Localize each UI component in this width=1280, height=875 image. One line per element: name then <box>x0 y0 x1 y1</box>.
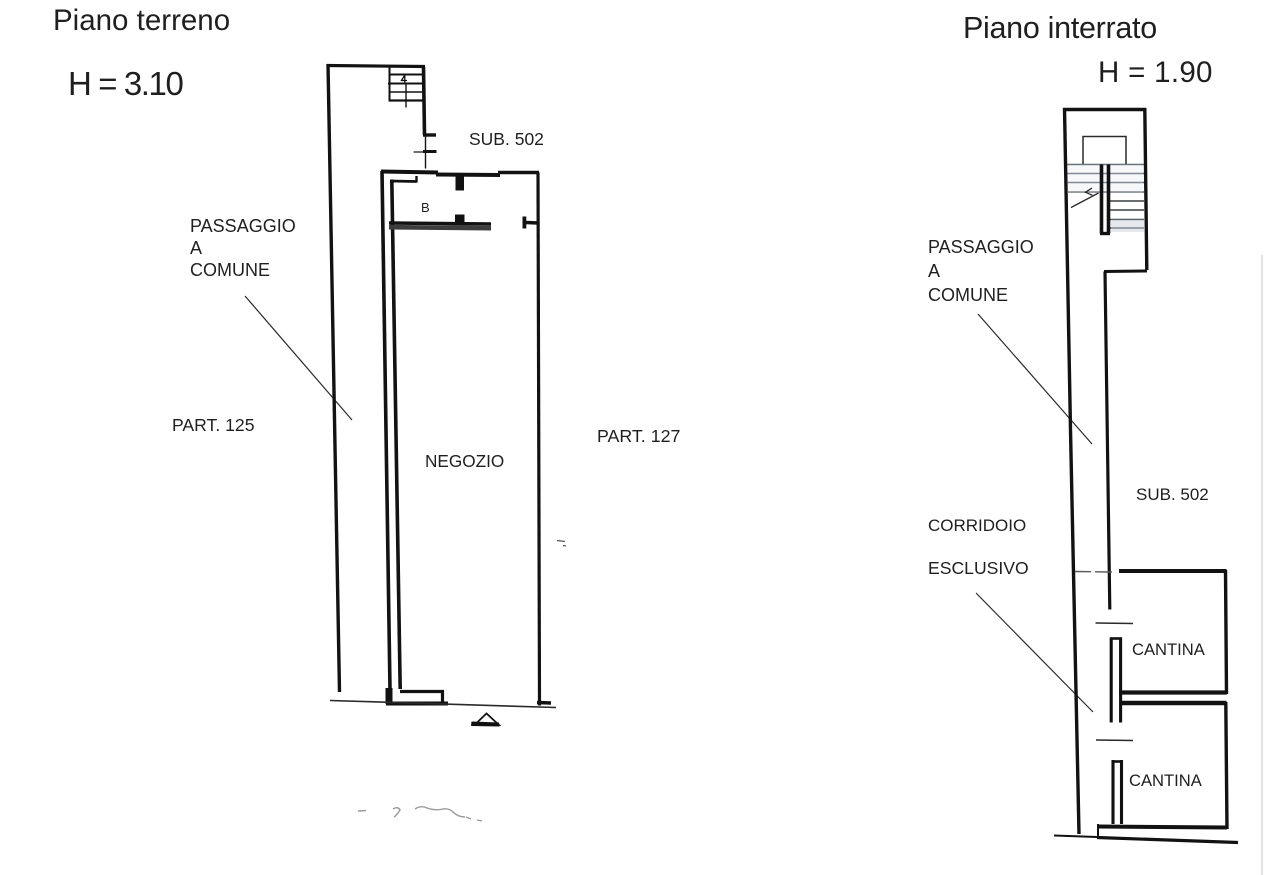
svg-text:PART. 125: PART. 125 <box>172 415 255 435</box>
svg-text:Piano interrato: Piano interrato <box>963 11 1157 45</box>
svg-text:PART. 127: PART. 127 <box>597 426 680 446</box>
svg-text:CANTINA: CANTINA <box>1132 640 1206 659</box>
svg-text:SUB. 502: SUB. 502 <box>469 129 544 149</box>
svg-text:B: B <box>421 200 430 215</box>
svg-text:PASSAGGIO: PASSAGGIO <box>928 237 1034 257</box>
svg-text:COMUNE: COMUNE <box>190 260 270 280</box>
svg-text:COMUNE: COMUNE <box>928 285 1008 305</box>
svg-text:CORRIDOIO: CORRIDOIO <box>928 516 1026 535</box>
svg-text:H = 3.10: H = 3.10 <box>68 65 184 102</box>
svg-text:Piano terreno: Piano terreno <box>53 4 230 37</box>
svg-text:CANTINA: CANTINA <box>1129 771 1203 790</box>
svg-text:NEGOZIO: NEGOZIO <box>425 451 504 471</box>
svg-text:PASSAGGIO: PASSAGGIO <box>190 216 296 236</box>
svg-text:A: A <box>928 261 940 281</box>
svg-text:A: A <box>190 238 202 258</box>
svg-text:ESCLUSIVO: ESCLUSIVO <box>928 558 1029 578</box>
svg-text:SUB. 502: SUB. 502 <box>1136 485 1209 504</box>
svg-text:H = 1.90: H = 1.90 <box>1098 56 1213 89</box>
